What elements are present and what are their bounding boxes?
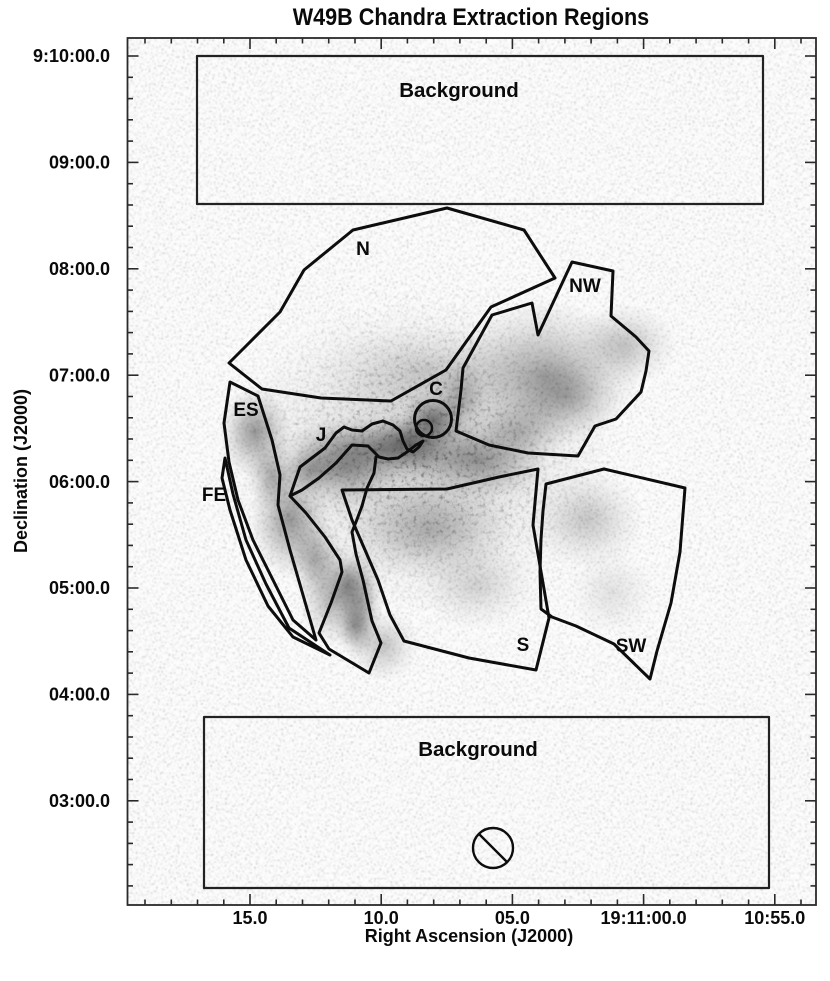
svg-text:J: J — [316, 425, 327, 446]
svg-text:NW: NW — [569, 276, 601, 297]
svg-text:N: N — [356, 239, 370, 260]
svg-text:04:00.0: 04:00.0 — [49, 685, 110, 705]
svg-text:9:10:00.0: 9:10:00.0 — [33, 46, 110, 66]
svg-text:W49B Chandra Extraction Region: W49B Chandra Extraction Regions — [293, 3, 649, 30]
svg-text:Background: Background — [418, 738, 538, 761]
svg-text:C: C — [429, 379, 443, 400]
svg-text:10:55.0: 10:55.0 — [744, 908, 805, 928]
svg-text:Declination (J2000): Declination (J2000) — [11, 389, 31, 553]
svg-text:07:00.0: 07:00.0 — [49, 365, 110, 385]
svg-text:FE: FE — [202, 485, 226, 506]
svg-text:09:00.0: 09:00.0 — [49, 153, 110, 173]
svg-text:05.0: 05.0 — [495, 908, 530, 928]
svg-text:10.0: 10.0 — [364, 908, 399, 928]
svg-text:ES: ES — [233, 400, 258, 421]
svg-text:15.0: 15.0 — [232, 908, 267, 928]
svg-text:Background: Background — [399, 79, 519, 102]
svg-text:08:00.0: 08:00.0 — [49, 259, 110, 279]
svg-text:06:00.0: 06:00.0 — [49, 472, 110, 492]
svg-text:S: S — [517, 635, 530, 656]
svg-text:05:00.0: 05:00.0 — [49, 578, 110, 598]
svg-text:Right Ascension (J2000): Right Ascension (J2000) — [365, 926, 573, 946]
svg-text:SW: SW — [616, 636, 647, 657]
svg-text:19:11:00.0: 19:11:00.0 — [601, 908, 687, 928]
svg-text:03:00.0: 03:00.0 — [49, 791, 110, 811]
